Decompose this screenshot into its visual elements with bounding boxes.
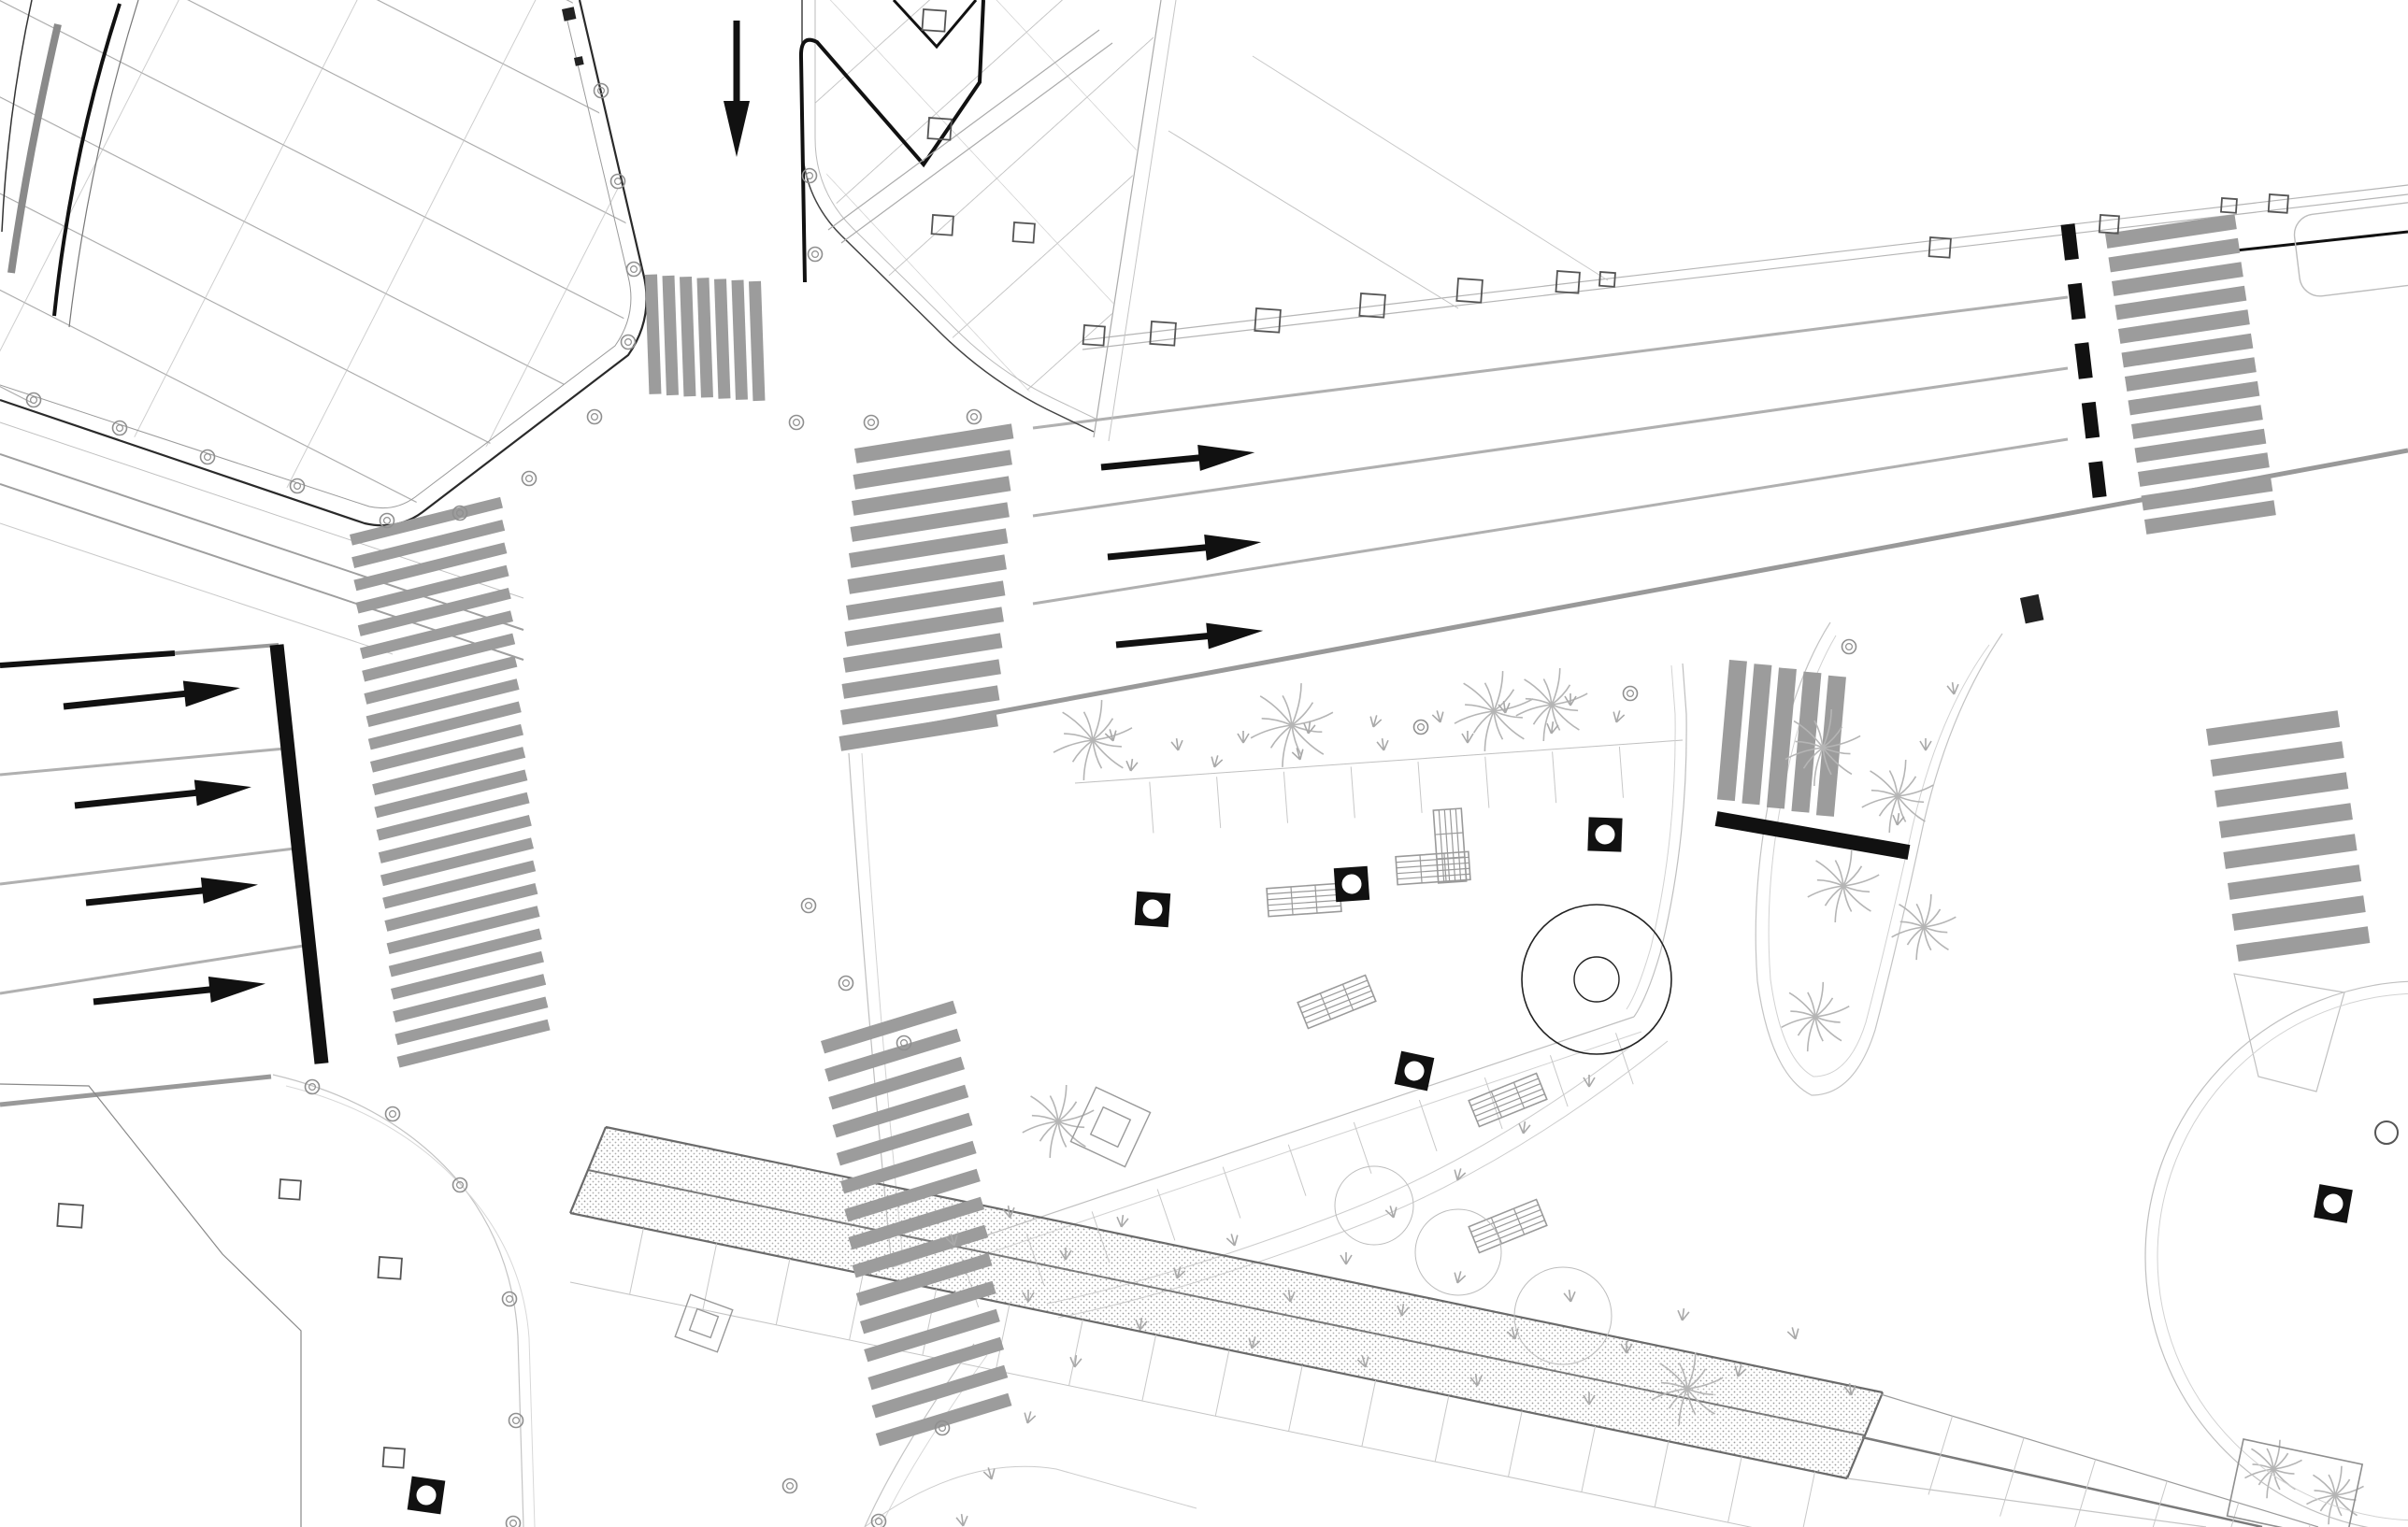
zebra-stripe bbox=[384, 883, 537, 932]
paving-joint bbox=[1801, 1472, 1815, 1527]
grass-mark-icon bbox=[956, 1513, 969, 1527]
plan-circle bbox=[2145, 981, 2408, 1527]
paving-joint bbox=[1582, 1426, 1596, 1491]
survey-mark-icon bbox=[2020, 594, 2043, 624]
paving-joint bbox=[1215, 1350, 1229, 1416]
palm-frond bbox=[1093, 740, 1101, 768]
bench-slat bbox=[1268, 894, 1340, 899]
bench-slat bbox=[1477, 1094, 1544, 1121]
arrow-head bbox=[183, 675, 242, 706]
bench-slat bbox=[1473, 1084, 1541, 1111]
traffic-island bbox=[2292, 200, 2408, 299]
arrow-shaft bbox=[64, 690, 193, 709]
palm-frond bbox=[1815, 1006, 1849, 1017]
zebra-stripe bbox=[351, 520, 505, 568]
grass-mark-icon bbox=[1677, 1307, 1690, 1321]
zebra-stripe bbox=[2223, 834, 2357, 869]
street-tree-icon bbox=[839, 977, 853, 991]
bench-slat bbox=[1302, 986, 1369, 1013]
palm-frond bbox=[1023, 1121, 1058, 1133]
paving-joint bbox=[1655, 1441, 1669, 1506]
grass-mark-icon bbox=[1584, 1075, 1595, 1087]
plan-line bbox=[588, 1170, 1865, 1435]
palm-frond bbox=[1292, 725, 1301, 755]
utility-box-icon bbox=[1150, 321, 1176, 346]
tree-planter-icon bbox=[408, 1477, 446, 1515]
zebra-stripe bbox=[382, 861, 536, 909]
palm-tree-icon bbox=[1251, 683, 1333, 767]
street-tree-icon bbox=[523, 472, 537, 486]
street-tree-icon bbox=[306, 1080, 320, 1094]
plan-line bbox=[277, 645, 322, 1063]
zebra-stripe bbox=[374, 769, 527, 818]
palm-frond bbox=[1889, 771, 1898, 796]
traffic-arrow-icon bbox=[724, 21, 750, 157]
zebra-stripe bbox=[2211, 741, 2344, 777]
zebra-stripe bbox=[1741, 664, 1771, 805]
street-tree-icon bbox=[453, 1178, 467, 1192]
zebra-stripe bbox=[370, 724, 523, 773]
bench-slat bbox=[1299, 980, 1367, 1007]
zebra-stripe bbox=[1717, 660, 1747, 801]
arrow-head bbox=[194, 774, 253, 806]
bench bbox=[1267, 883, 1341, 916]
paving-joint bbox=[1351, 766, 1354, 818]
utility-box-icon bbox=[279, 1179, 301, 1200]
paving-joint bbox=[1362, 1380, 1376, 1446]
bench-slat bbox=[1306, 996, 1373, 1023]
zebra-stripe bbox=[2206, 710, 2340, 746]
traffic-arrow-icon bbox=[1115, 618, 1265, 658]
plan-line bbox=[1033, 368, 2068, 516]
site-plan-drawing bbox=[0, 0, 2408, 1527]
paving-joint bbox=[1619, 747, 1623, 798]
zebra-stripe bbox=[394, 996, 548, 1045]
palm-frond bbox=[1058, 1121, 1067, 1147]
street-tree-icon bbox=[622, 335, 636, 350]
palm-tree-icon bbox=[1455, 671, 1533, 751]
bench-slat bbox=[1475, 1089, 1542, 1116]
grass-mark-icon bbox=[1462, 731, 1473, 743]
palm-frond bbox=[1924, 917, 1956, 927]
palm-frond bbox=[1892, 927, 1924, 937]
zebra-stripe bbox=[362, 634, 515, 682]
palm-frond bbox=[1494, 711, 1502, 739]
zebra-stripe bbox=[2228, 864, 2361, 900]
street-tree-icon bbox=[1624, 687, 1638, 701]
zebra-stripe bbox=[2236, 926, 2370, 962]
paving-joint bbox=[1288, 1145, 1306, 1196]
palm-frond bbox=[1485, 683, 1494, 711]
palm-tree-icon bbox=[1808, 849, 1879, 922]
bench-slat bbox=[1268, 906, 1341, 910]
paving-joint bbox=[2000, 1437, 2025, 1516]
grass-mark-icon bbox=[1238, 731, 1249, 743]
crosswalk-north bbox=[645, 275, 765, 402]
bench-slat bbox=[1477, 1220, 1544, 1248]
bench-slat bbox=[1470, 1205, 1538, 1232]
traffic-arrow-icon bbox=[1100, 439, 1256, 480]
arrow-head bbox=[1204, 529, 1262, 561]
plan-line bbox=[1253, 56, 1608, 280]
palm-tree-icon bbox=[1053, 700, 1132, 780]
plan-line bbox=[0, 523, 393, 654]
traffic-arrow-icon bbox=[85, 872, 260, 916]
stop-line-dashed bbox=[2068, 224, 2101, 512]
paving-joint bbox=[1283, 772, 1287, 823]
zebra-stripe bbox=[377, 792, 530, 841]
bench-slat bbox=[1396, 857, 1469, 862]
grass-mark-icon bbox=[1431, 709, 1445, 724]
planter-rect bbox=[2228, 1439, 2363, 1527]
paving-joint bbox=[1150, 782, 1154, 834]
crosswalk-center bbox=[839, 423, 1014, 750]
plan-line bbox=[2236, 232, 2408, 250]
palm-frond bbox=[1050, 1096, 1058, 1121]
arrow-shaft bbox=[75, 789, 204, 808]
grass-mark-icon bbox=[1565, 693, 1576, 706]
street-tree-icon bbox=[865, 416, 879, 430]
grass-mark-icon bbox=[1452, 1270, 1466, 1285]
grass-mark-icon bbox=[1611, 709, 1625, 724]
paving-joint bbox=[1615, 1033, 1633, 1084]
street-tree-icon bbox=[509, 1414, 523, 1428]
palm-frond bbox=[1862, 796, 1898, 807]
utility-box-icon bbox=[57, 1204, 83, 1228]
palm-frond bbox=[1543, 679, 1552, 705]
bench-slat bbox=[1450, 809, 1455, 882]
plan-line bbox=[1168, 131, 1458, 308]
palm-frond bbox=[1084, 712, 1093, 740]
paving-joint bbox=[1418, 762, 1422, 813]
tree-planter-icon bbox=[2314, 1184, 2353, 1223]
zebra-stripe bbox=[389, 929, 542, 978]
bench-slat bbox=[1304, 991, 1371, 1018]
plan-line bbox=[273, 1075, 523, 1527]
palm-frond bbox=[1455, 711, 1494, 723]
arrow-head bbox=[208, 971, 267, 1003]
palm-frond bbox=[1843, 875, 1879, 886]
grass-mark-icon bbox=[1125, 758, 1139, 772]
grass-mark-icon bbox=[1377, 737, 1390, 751]
arrow-head bbox=[201, 872, 260, 904]
palm-frond bbox=[1843, 886, 1852, 911]
plan-line bbox=[903, 1032, 1641, 1282]
paving-joint bbox=[776, 1259, 790, 1324]
zebra-stripe bbox=[356, 565, 509, 614]
bench bbox=[1469, 1199, 1547, 1252]
bench bbox=[1469, 1073, 1547, 1126]
bench-slat bbox=[1268, 900, 1340, 905]
arrow-shaft bbox=[86, 887, 210, 906]
arrow-head bbox=[724, 101, 750, 157]
plan-line bbox=[1033, 439, 2068, 604]
bench-slat bbox=[1439, 810, 1443, 883]
plan-line bbox=[2234, 974, 2344, 1092]
grass-mark-icon bbox=[1340, 1252, 1352, 1264]
plan-circle bbox=[1522, 905, 1671, 1054]
crosswalk-east bbox=[2105, 214, 2276, 535]
grass-mark-icon bbox=[1171, 737, 1184, 751]
palm-frond bbox=[1898, 785, 1933, 796]
zebra-stripe bbox=[364, 656, 517, 705]
palm-frond bbox=[1283, 695, 1292, 725]
grass-mark-icon bbox=[1947, 681, 1960, 695]
street-tree-icon bbox=[783, 1479, 797, 1493]
paving-joint bbox=[1157, 1189, 1175, 1240]
paving-joint bbox=[1142, 1334, 1156, 1400]
paving-joint bbox=[1223, 1167, 1240, 1219]
zebra-stripe bbox=[353, 542, 507, 591]
zebra-stripe bbox=[372, 747, 525, 795]
bench-slat bbox=[1455, 808, 1460, 881]
survey-mark-icon bbox=[574, 56, 584, 66]
paving-joint bbox=[1509, 1411, 1523, 1477]
paving-joint bbox=[1728, 1457, 1742, 1522]
plan-line bbox=[865, 1466, 1197, 1527]
crosswalk-west bbox=[350, 497, 551, 1068]
zebra-stripe bbox=[680, 277, 695, 396]
street-tree-icon bbox=[809, 248, 823, 262]
zebra-stripe bbox=[379, 815, 532, 863]
paving-joint bbox=[630, 1228, 644, 1293]
zebra-stripe bbox=[663, 276, 679, 395]
site-plan-canvas bbox=[0, 0, 2408, 1527]
arrow-shaft bbox=[734, 21, 740, 108]
bench-slat bbox=[1397, 868, 1469, 873]
traffic-arrow-icon bbox=[63, 675, 242, 720]
grass-mark-icon bbox=[1920, 738, 1931, 750]
zebra-stripe bbox=[368, 702, 522, 750]
tree-planter-icon bbox=[1334, 866, 1369, 902]
plan-line bbox=[0, 749, 285, 775]
zebra-stripe bbox=[645, 275, 661, 394]
street-tree-icon bbox=[790, 416, 804, 430]
plan-line bbox=[1881, 1394, 2318, 1527]
bench-slat bbox=[1473, 1210, 1541, 1237]
grass-mark-icon bbox=[1022, 1410, 1036, 1425]
paving-joint bbox=[996, 1305, 1010, 1370]
palm-frond bbox=[1516, 705, 1552, 716]
grass-mark-icon bbox=[1384, 1205, 1398, 1220]
paving-joint bbox=[1553, 751, 1556, 803]
crosswalk-southeast bbox=[2206, 710, 2370, 962]
zebra-stripe bbox=[697, 278, 713, 397]
arrow-shaft bbox=[93, 986, 218, 1006]
street-tree-icon bbox=[386, 1107, 400, 1121]
tree-planter-icon bbox=[1587, 817, 1622, 851]
tree-planter-icon bbox=[1395, 1051, 1435, 1092]
grass-mark-icon bbox=[1225, 1233, 1240, 1248]
paving-joint bbox=[1550, 1055, 1568, 1106]
traffic-arrow-icon bbox=[93, 971, 267, 1015]
plan-line bbox=[0, 653, 175, 665]
grass-mark-icon bbox=[1498, 700, 1512, 714]
bench bbox=[1433, 808, 1466, 883]
plan-line bbox=[0, 1084, 301, 1527]
paving-joint bbox=[1485, 757, 1489, 808]
street-tree-icon bbox=[967, 410, 982, 424]
arrow-shaft bbox=[1116, 632, 1215, 648]
plan-line bbox=[1862, 1437, 2262, 1527]
zebra-stripe bbox=[749, 281, 765, 401]
street-tree-icon bbox=[588, 410, 602, 424]
traffic-arrow-icon bbox=[1107, 529, 1263, 570]
grass-mark-icon bbox=[1209, 754, 1223, 769]
plan-line bbox=[286, 1086, 535, 1527]
arrow-shaft bbox=[1108, 544, 1213, 561]
street-tree-icon bbox=[802, 899, 816, 913]
zebra-stripe bbox=[393, 974, 546, 1022]
plan-line bbox=[1634, 664, 1686, 1017]
plan-line bbox=[175, 645, 279, 653]
zebra-stripe bbox=[360, 610, 513, 659]
grass-mark-icon bbox=[1069, 1354, 1082, 1368]
arrow-shaft bbox=[1101, 454, 1207, 471]
plan-circle bbox=[2375, 1121, 2398, 1144]
palm-frond bbox=[1251, 725, 1292, 738]
street-tree-icon bbox=[1842, 640, 1856, 654]
plan-line bbox=[1033, 297, 2068, 428]
grass-mark-icon bbox=[1368, 714, 1382, 729]
palm-tree-icon bbox=[1782, 982, 1850, 1051]
street-tree-icon bbox=[507, 1517, 521, 1527]
palm-frond bbox=[1058, 1110, 1094, 1121]
zebra-stripe bbox=[397, 1020, 551, 1068]
bench-slat bbox=[1397, 874, 1470, 878]
street-tree-icon bbox=[503, 1292, 517, 1306]
zebra-stripe bbox=[1767, 667, 1797, 808]
palm-frond bbox=[1808, 886, 1843, 897]
bench-slat bbox=[1397, 863, 1469, 867]
grass-mark-icon bbox=[1116, 1214, 1129, 1228]
survey-mark-icon bbox=[562, 7, 576, 21]
paving-joint bbox=[1289, 1365, 1303, 1431]
zebra-stripe bbox=[391, 951, 544, 1000]
plan-circle bbox=[2157, 993, 2408, 1520]
plan-circle bbox=[1335, 1166, 1413, 1245]
bench-slat bbox=[1470, 1078, 1538, 1106]
plan-line bbox=[1075, 740, 1683, 783]
zebra-stripe bbox=[2219, 803, 2353, 838]
plan-line bbox=[1716, 819, 1909, 852]
zebra-stripe bbox=[387, 906, 540, 954]
paving-joint bbox=[1069, 1320, 1083, 1385]
paving-joint bbox=[1419, 1100, 1437, 1151]
zebra-stripe bbox=[714, 278, 730, 398]
paving-joint bbox=[1928, 1416, 1953, 1494]
grass-mark-icon bbox=[1564, 1289, 1577, 1303]
utility-box-icon bbox=[1456, 278, 1483, 303]
arrow-head bbox=[1197, 439, 1255, 471]
traffic-arrow-icon bbox=[74, 774, 253, 819]
paving-joint bbox=[850, 1274, 864, 1339]
zebra-stripe bbox=[2232, 895, 2366, 931]
plan-line bbox=[0, 1077, 271, 1105]
zebra-stripe bbox=[2214, 772, 2348, 807]
utility-box-icon bbox=[383, 1448, 405, 1468]
paving-joint bbox=[2071, 1460, 2096, 1527]
zebra-stripe bbox=[732, 280, 748, 400]
plan-circle bbox=[1574, 957, 1619, 1002]
zebra-stripe bbox=[366, 678, 520, 727]
tree-planter-icon bbox=[1135, 892, 1170, 927]
palm-frond bbox=[1835, 861, 1843, 886]
grass-mark-icon bbox=[1452, 1167, 1466, 1182]
plan-line bbox=[0, 946, 304, 993]
bench bbox=[1297, 975, 1376, 1028]
palm-frond bbox=[1053, 740, 1093, 752]
street-tree-icon bbox=[1414, 721, 1428, 735]
palm-tree-icon bbox=[1892, 894, 1956, 960]
palm-frond bbox=[1292, 712, 1333, 725]
paving-joint bbox=[1435, 1395, 1449, 1461]
arrow-head bbox=[1206, 618, 1264, 649]
paving-joint bbox=[1354, 1122, 1371, 1174]
zebra-stripe bbox=[380, 837, 534, 886]
paving-joint bbox=[1217, 777, 1221, 828]
grass-mark-icon bbox=[1786, 1326, 1800, 1341]
block-topleft-paving bbox=[0, 0, 638, 516]
block-topcenter-paving-cross bbox=[815, 0, 1159, 435]
bench-slat bbox=[1267, 889, 1340, 893]
plan-line bbox=[0, 849, 294, 884]
palm-frond bbox=[1782, 1017, 1815, 1027]
utility-box-icon bbox=[378, 1257, 401, 1279]
